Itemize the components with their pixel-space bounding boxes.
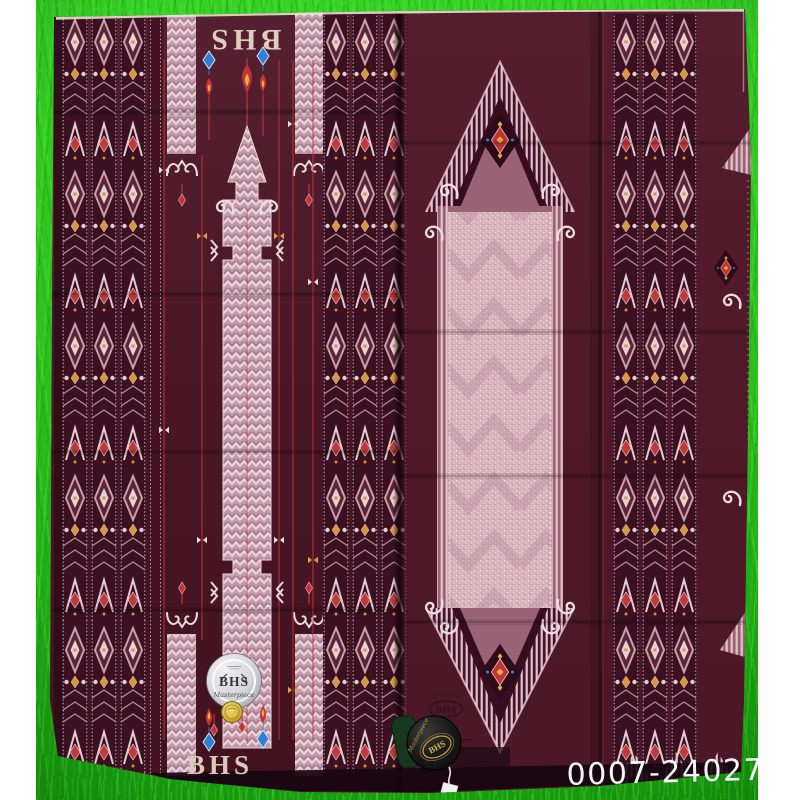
watermark-text: 0007-240271 bbox=[566, 752, 785, 793]
badge-brand-text: BHS bbox=[219, 674, 249, 689]
ikat-stripe-group-right-layer bbox=[613, 14, 697, 774]
right-panel bbox=[404, 8, 756, 792]
ikat-stripe-group-left bbox=[62, 12, 146, 774]
center-medallion bbox=[426, 62, 574, 752]
dotted-divider-band bbox=[148, 12, 163, 774]
tag-shadow bbox=[452, 747, 510, 767]
badge-script-text: Masterpiece bbox=[212, 691, 254, 699]
sarong-fabric: BHS BHS BHS Masterpiece BHS bbox=[46, 6, 758, 798]
silver-masterpiece-badge: BHS Masterpiece bbox=[207, 654, 262, 709]
brand-text-bottom: BHS bbox=[187, 750, 253, 780]
brand-text-top: BHS bbox=[206, 23, 281, 56]
layer-edge bbox=[598, 8, 602, 792]
gold-seal bbox=[222, 702, 243, 723]
stamp-brand-text: BHS bbox=[436, 706, 457, 716]
product-photo: BHS BHS BHS Masterpiece BHS bbox=[0, 0, 800, 800]
